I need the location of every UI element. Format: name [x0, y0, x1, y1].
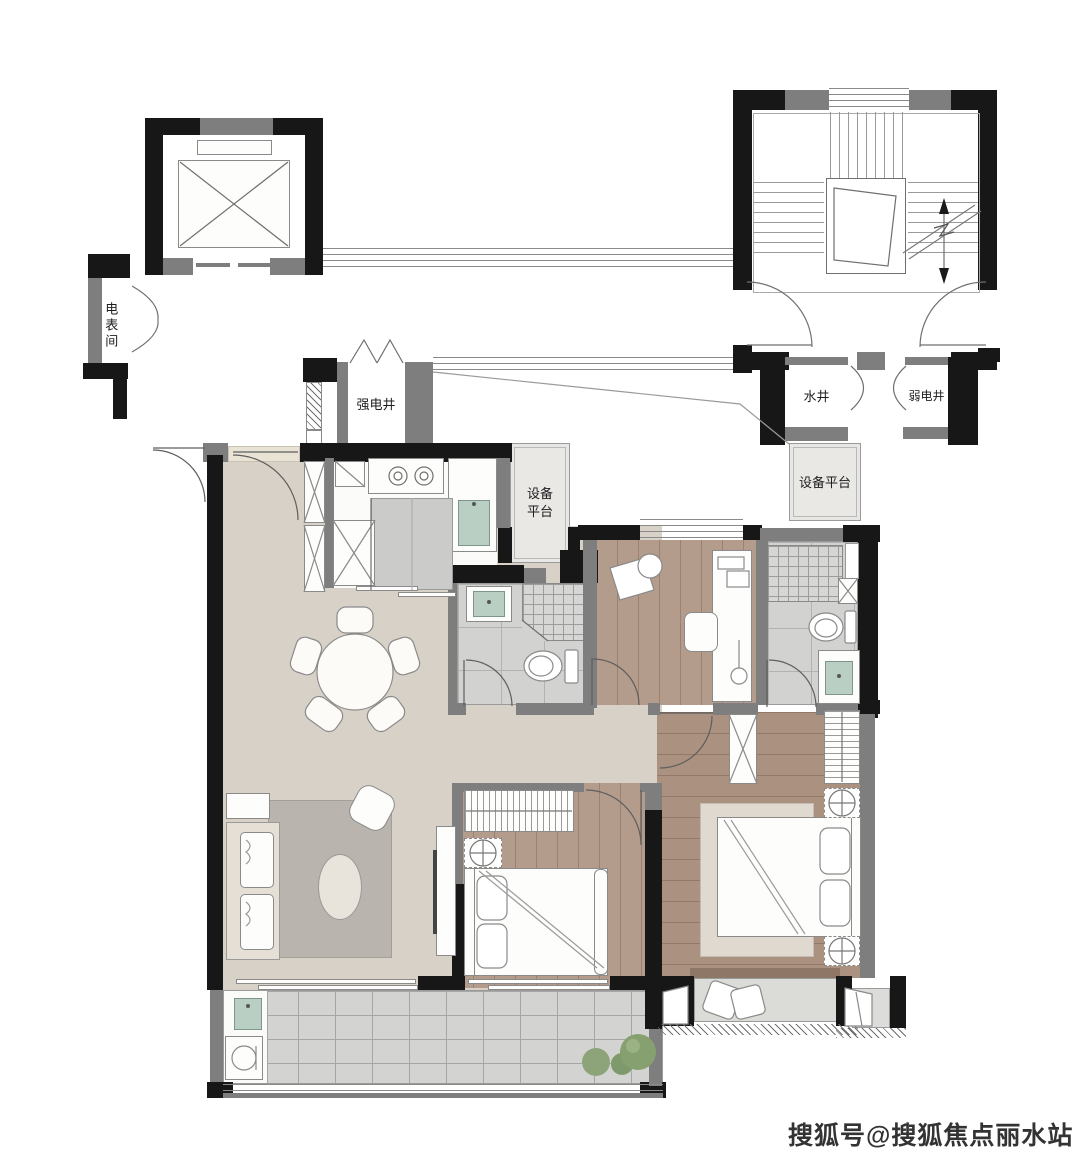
sofa-pillow-marks: [246, 840, 250, 926]
stove-burners-icon: [371, 467, 433, 590]
shaft-door-icons: [132, 286, 906, 410]
equipment-platform-left-label: 设备 平台: [512, 485, 568, 521]
faucet-marks: [246, 502, 841, 1008]
door-swing-icons: [153, 448, 816, 845]
x-box-icons: [304, 461, 858, 784]
stairs-icon: [747, 188, 986, 347]
study-items: [610, 554, 749, 684]
washing-machine-icon: [232, 1046, 256, 1070]
dining-chair: [337, 607, 373, 633]
shower-corner: [522, 620, 548, 641]
bay-window-details: [663, 979, 872, 1026]
plant-icons: [582, 1034, 656, 1076]
dining-set: [288, 607, 422, 735]
lamp-icons: [470, 790, 855, 964]
floor-plan: 电表间 水井 弱电井 设备平台 强电井: [0, 0, 1080, 1158]
boundary-lines: [433, 372, 789, 444]
bed-details: [477, 820, 850, 968]
wardrobe-rods: [466, 712, 842, 811]
toilet-icon: [809, 611, 856, 643]
watermark: 搜狐号@搜狐焦点丽水站: [788, 1116, 1076, 1152]
toilet-icon: [524, 650, 578, 683]
elevator-x-icon: [180, 162, 288, 246]
plan-linework: [0, 0, 1080, 1158]
dining-table: [317, 634, 393, 710]
